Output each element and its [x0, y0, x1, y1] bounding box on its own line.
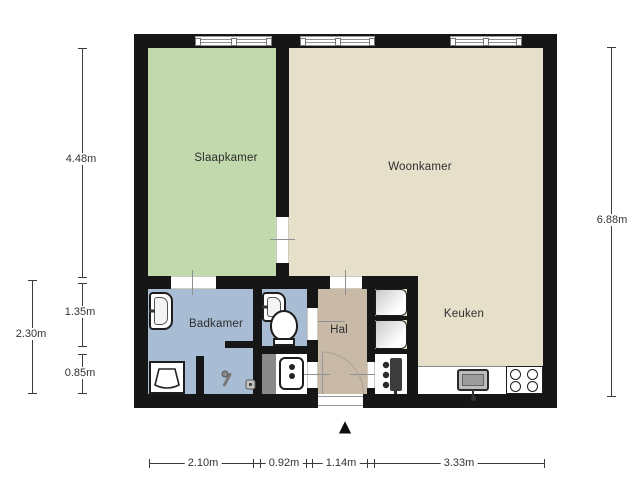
door-opening-slaapkamer-badkamer: [171, 276, 216, 289]
room-label-badkamer: Badkamer: [189, 318, 243, 330]
wall-toilet-hal-a: [307, 289, 318, 308]
dimension-label-width-2: 0.92m: [266, 457, 303, 469]
dimension-label-height-top: 4.48m: [63, 153, 100, 165]
dimension-label-height-bottom: 0.85m: [62, 367, 99, 379]
wall-mid-b: [216, 276, 330, 289]
floor-plan-canvas: Slaapkamer Woonkamer Badkamer Hal Keuken…: [0, 0, 640, 480]
entrance-door-arc-icon: [318, 350, 366, 396]
wall-toilet-hal-c: [307, 388, 318, 394]
dimension-label-width-3: 1.14m: [323, 457, 360, 469]
dimension-tick: [78, 346, 87, 347]
dimension-tick: [312, 459, 313, 468]
dimension-label-left-total: 2.30m: [13, 328, 50, 340]
door-opening-slaapkamer-woonkamer: [276, 217, 289, 263]
dimension-label-height-mid: 1.35m: [62, 306, 99, 318]
wall-mid-a: [148, 276, 171, 289]
water-heater-icon: [279, 357, 304, 390]
dimension-tick: [374, 459, 375, 468]
closet-top: [375, 289, 407, 316]
room-label-woonkamer: Woonkamer: [388, 161, 452, 173]
wall-slaap-woon-a: [276, 48, 289, 217]
dimension-label-width-4: 3.33m: [441, 457, 478, 469]
closet-bottom: [375, 320, 407, 349]
washing-machine-icon: [149, 361, 185, 394]
entrance-threshold: [318, 394, 363, 408]
closet-divider-1: [375, 316, 407, 320]
door-opening-hal-woonkamer: [330, 276, 362, 289]
toilet-icon: [268, 310, 300, 350]
shower-drain-icon: [220, 370, 258, 394]
door-opening-toilet: [307, 308, 318, 340]
dimension-tick: [78, 277, 87, 278]
wall-closets-keuken: [407, 276, 418, 394]
window-woonkamer-left: [300, 36, 375, 46]
cv-boiler-icon: [378, 356, 408, 394]
wall-hal-closets-b: [367, 388, 375, 394]
window-woonkamer-right: [450, 36, 522, 46]
kitchen-sink-icon: [457, 369, 489, 391]
dimension-tick: [306, 459, 307, 468]
north-arrow-icon: ▲: [335, 417, 356, 438]
dimension-tick: [367, 459, 368, 468]
badkamer-stub-wall-v: [196, 356, 204, 394]
duct-shaft: [262, 354, 276, 394]
door-tick: [270, 239, 295, 240]
dimension-tick: [78, 393, 87, 394]
dimension-tick: [28, 280, 37, 281]
door-leaf-toilet: [318, 321, 345, 322]
wall-right: [543, 34, 557, 408]
wall-left: [134, 34, 148, 408]
room-label-hal: Hal: [330, 324, 348, 336]
dimension-tick: [544, 459, 545, 468]
door-tick: [192, 270, 193, 295]
room-label-slaapkamer: Slaapkamer: [194, 152, 257, 164]
dimension-tick: [28, 393, 37, 394]
badkamer-stub-wall-h: [225, 341, 253, 348]
wall-hal-closets-a: [367, 289, 375, 362]
dimension-tick: [607, 396, 616, 397]
dimension-label-width-1: 2.10m: [185, 457, 222, 469]
dimension-tick: [260, 459, 261, 468]
washbasin-icon: [149, 292, 173, 330]
stove-icon: [506, 366, 543, 394]
dimension-tick: [149, 459, 150, 468]
dimension-tick: [253, 459, 254, 468]
door-opening-meterkast: [307, 362, 318, 388]
dimension-tick: [607, 47, 616, 48]
door-tick: [345, 270, 346, 295]
dimension-tick: [78, 354, 87, 355]
room-label-keuken: Keuken: [444, 308, 484, 320]
dimension-tick: [78, 48, 87, 49]
door-opening-boiler-closet: [367, 362, 375, 388]
closet-divider-2: [375, 349, 407, 354]
window-slaapkamer: [195, 36, 272, 46]
dimension-label-right-total: 6.88m: [594, 214, 631, 226]
dimension-tick: [78, 283, 87, 284]
